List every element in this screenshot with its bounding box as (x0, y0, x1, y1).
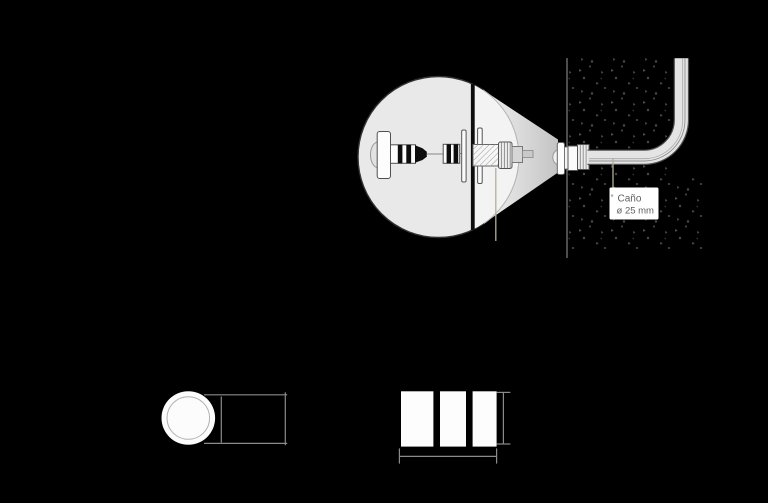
front-flange (377, 132, 390, 179)
installation-diagram-canvas: Caño ø 25 mm (0, 0, 768, 503)
connector-oring-2 (454, 144, 459, 163)
connector-oring-1 (447, 144, 451, 163)
body-side-view-drawing (399, 391, 510, 463)
body-segment-1 (401, 391, 433, 446)
cano-label-line2: ø 25 mm (617, 206, 655, 217)
wall-fixture-neck (565, 147, 569, 169)
detail-view (358, 77, 558, 242)
front-view-disc (162, 391, 216, 445)
threaded-bushing-hatch (473, 145, 499, 167)
lamp-oring-1 (398, 145, 403, 164)
conduit-stub (523, 151, 534, 158)
cano-leader-dot (611, 195, 613, 197)
installation-diagram: Caño ø 25 mm (0, 0, 768, 503)
side-profile-lines (204, 392, 287, 445)
lamp-barrel (391, 145, 416, 164)
front-view-drawing (162, 391, 288, 445)
height-dimension (496, 392, 510, 444)
body-segment-3 (473, 391, 497, 446)
wall-fixture (553, 143, 589, 175)
width-dimension (399, 448, 496, 463)
wall-fixture-body (568, 146, 578, 171)
cano-label-line1: Caño (618, 194, 642, 205)
wall-fixture-face (557, 143, 564, 175)
conduit-adapter (512, 147, 523, 163)
lamp-oring-2 (406, 145, 411, 164)
body-segment-2 (440, 391, 466, 446)
mounting-plate-front (462, 130, 466, 182)
